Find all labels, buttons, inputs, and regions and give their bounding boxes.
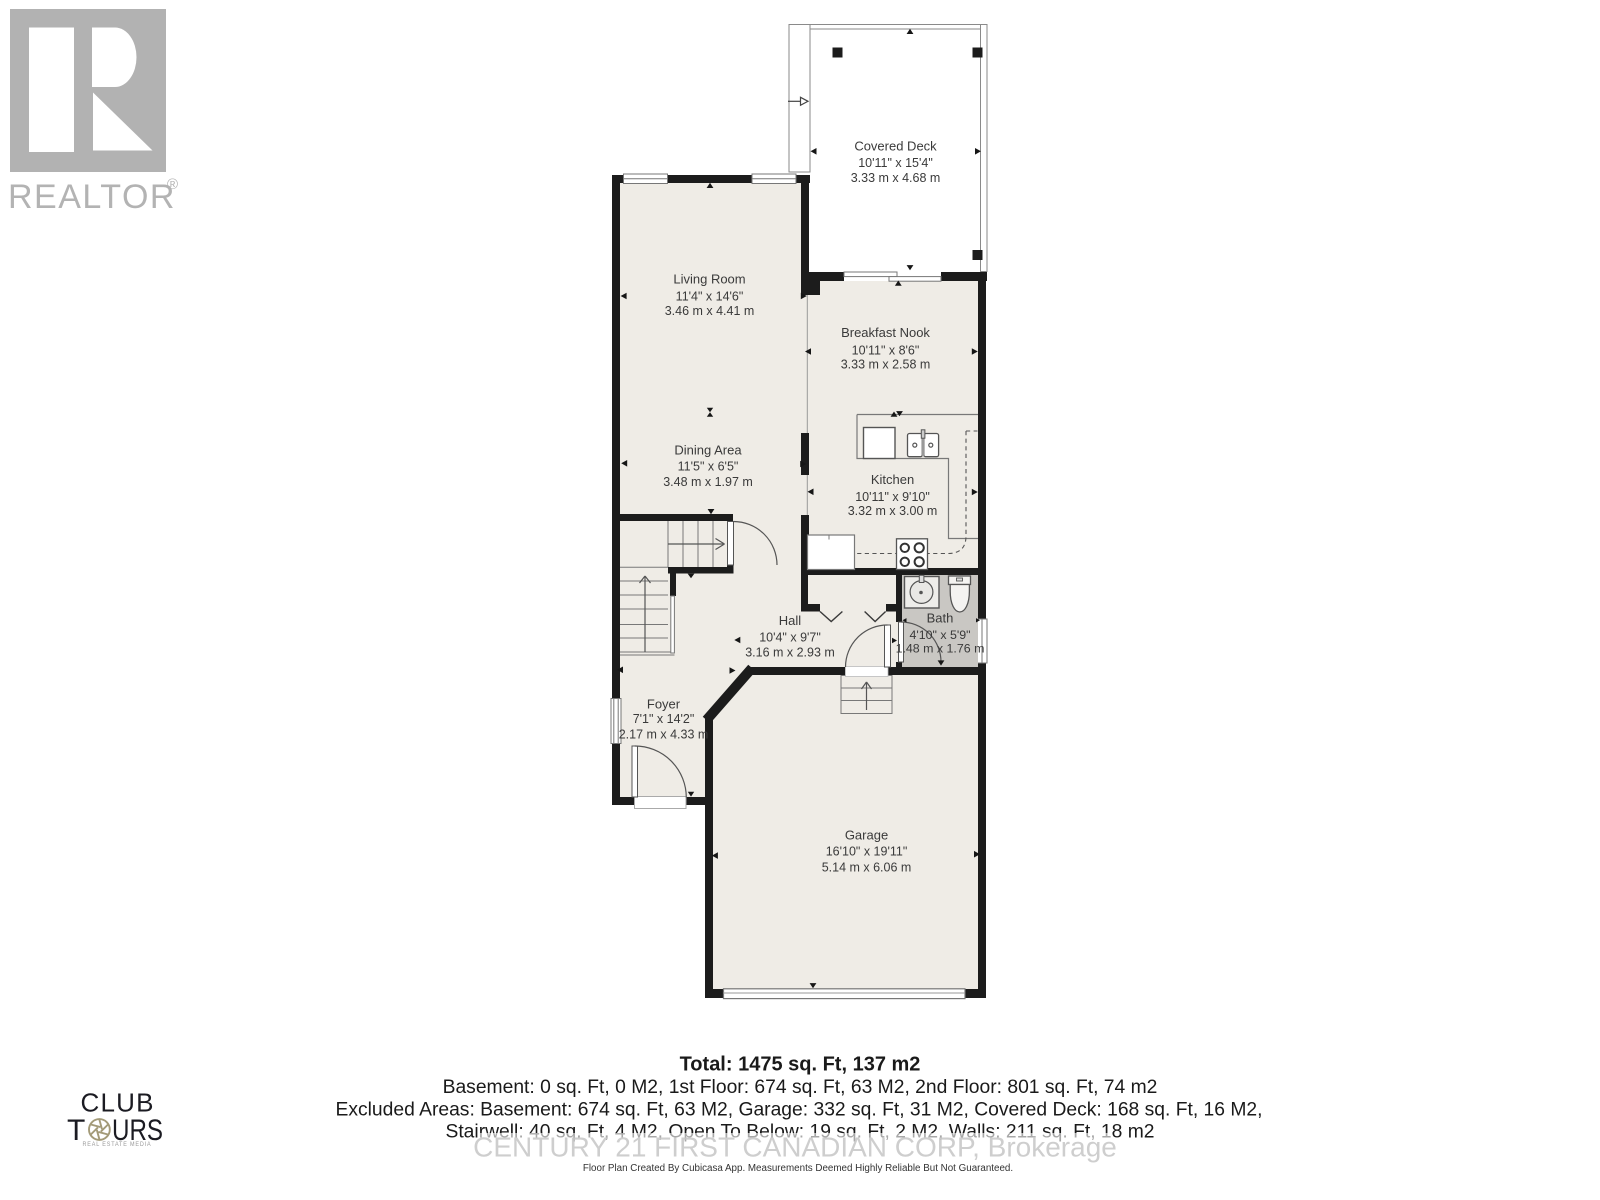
svg-text:10'4" x 9'7": 10'4" x 9'7"	[759, 630, 821, 644]
svg-text:3.46 m x 4.41 m: 3.46 m x 4.41 m	[665, 304, 755, 318]
svg-text:10'11" x 15'4": 10'11" x 15'4"	[858, 156, 933, 170]
svg-text:3.32 m x 3.00 m: 3.32 m x 3.00 m	[848, 504, 938, 518]
svg-text:Breakfast Nook: Breakfast Nook	[841, 325, 930, 340]
svg-text:Covered Deck: Covered Deck	[854, 139, 937, 154]
svg-text:®: ®	[167, 176, 178, 193]
svg-text:11'4" x 14'6": 11'4" x 14'6"	[676, 290, 744, 304]
svg-text:Total: 1475 sq. Ft, 137 m2: Total: 1475 sq. Ft, 137 m2	[680, 1054, 921, 1076]
svg-text:Dining Area: Dining Area	[674, 443, 742, 458]
svg-text:Garage: Garage	[845, 828, 888, 843]
svg-text:7'1" x 14'2": 7'1" x 14'2"	[633, 712, 695, 726]
svg-text:16'10" x 19'11": 16'10" x 19'11"	[826, 845, 908, 859]
svg-text:2.17 m x 4.33 m: 2.17 m x 4.33 m	[619, 728, 709, 742]
svg-text:11'5" x 6'5": 11'5" x 6'5"	[678, 460, 739, 474]
svg-text:Hall: Hall	[779, 613, 802, 628]
svg-text:Kitchen: Kitchen	[871, 472, 914, 487]
svg-text:5.14 m x 6.06 m: 5.14 m x 6.06 m	[822, 860, 912, 874]
svg-text:3.33 m x 4.68 m: 3.33 m x 4.68 m	[851, 171, 941, 185]
svg-text:Floor Plan Created By Cubicasa: Floor Plan Created By Cubicasa App. Meas…	[583, 1163, 1013, 1174]
svg-text:REALTOR: REALTOR	[8, 178, 176, 216]
svg-text:10'11" x 8'6": 10'11" x 8'6"	[852, 343, 920, 357]
svg-text:Living Room: Living Room	[673, 271, 745, 286]
svg-text:CENTURY 21 FIRST CANADIAN CORP: CENTURY 21 FIRST CANADIAN CORP, Brokerag…	[473, 1132, 1117, 1163]
svg-text:Bath: Bath	[927, 611, 954, 626]
svg-text:1.48 m x 1.76 m: 1.48 m x 1.76 m	[896, 642, 985, 656]
svg-text:3.33 m x 2.58 m: 3.33 m x 2.58 m	[841, 358, 931, 372]
svg-text:Excluded Areas: Basement: 674: Excluded Areas: Basement: 674 sq. Ft, 63…	[335, 1100, 1262, 1121]
svg-text:REAL ESTATE MEDIA: REAL ESTATE MEDIA	[83, 1141, 152, 1148]
svg-text:CLUB: CLUB	[81, 1088, 155, 1118]
svg-text:4'10" x 5'9": 4'10" x 5'9"	[909, 628, 970, 642]
svg-text:3.16 m x 2.93 m: 3.16 m x 2.93 m	[745, 645, 835, 659]
svg-text:10'11" x 9'10": 10'11" x 9'10"	[855, 490, 930, 504]
svg-text:Foyer: Foyer	[647, 697, 681, 712]
svg-text:Basement: 0 sq. Ft, 0 M2, 1st: Basement: 0 sq. Ft, 0 M2, 1st Floor: 674…	[443, 1077, 1158, 1098]
svg-text:3.48 m x 1.97 m: 3.48 m x 1.97 m	[663, 475, 753, 489]
